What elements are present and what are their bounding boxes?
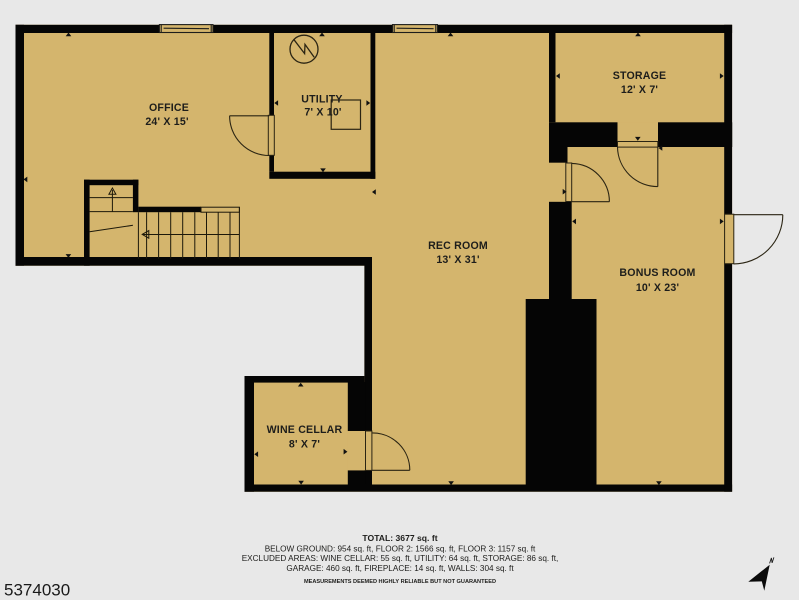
svg-text:UTILITY: UTILITY bbox=[301, 94, 342, 106]
svg-text:GARAGE: 460 sq. ft, FIREPLACE:: GARAGE: 460 sq. ft, FIREPLACE: 14 sq. ft… bbox=[286, 564, 514, 573]
svg-text:STORAGE: STORAGE bbox=[613, 70, 667, 82]
svg-text:8' X 7': 8' X 7' bbox=[289, 439, 320, 451]
svg-text:EXCLUDED AREAS: WINE CELLAR: 5: EXCLUDED AREAS: WINE CELLAR: 55 sq. ft, … bbox=[242, 554, 559, 563]
svg-text:OFFICE: OFFICE bbox=[149, 102, 189, 114]
svg-text:BONUS ROOM: BONUS ROOM bbox=[619, 267, 695, 279]
svg-text:5374030: 5374030 bbox=[4, 581, 70, 600]
svg-text:WINE CELLAR: WINE CELLAR bbox=[267, 424, 343, 436]
svg-text:10' X 23': 10' X 23' bbox=[636, 282, 679, 294]
svg-text:7' X 10': 7' X 10' bbox=[304, 107, 341, 119]
svg-text:24' X 15': 24' X 15' bbox=[145, 116, 188, 128]
svg-text:BELOW GROUND: 954 sq. ft, FLOO: BELOW GROUND: 954 sq. ft, FLOOR 2: 1566 … bbox=[265, 544, 536, 553]
svg-text:13' X 31': 13' X 31' bbox=[436, 254, 479, 266]
svg-text:REC ROOM: REC ROOM bbox=[428, 240, 488, 252]
svg-text:TOTAL: 3677 sq. ft: TOTAL: 3677 sq. ft bbox=[362, 533, 437, 543]
svg-text:12' X 7': 12' X 7' bbox=[621, 84, 658, 96]
svg-text:MEASUREMENTS DEEMED HIGHLY REL: MEASUREMENTS DEEMED HIGHLY RELIABLE BUT … bbox=[304, 579, 496, 585]
